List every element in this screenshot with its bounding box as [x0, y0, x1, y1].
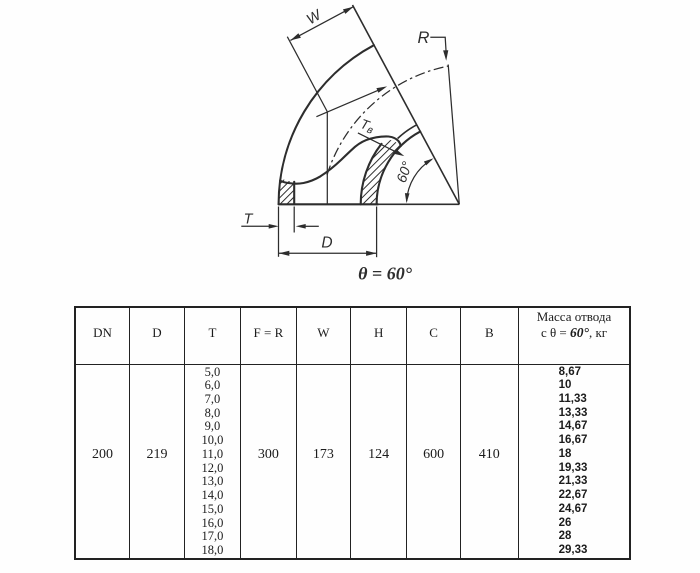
svg-text:θ = 60°: θ = 60°	[358, 264, 413, 284]
svg-text:T: T	[244, 212, 254, 228]
svg-text:W: W	[304, 7, 325, 28]
svg-text:D: D	[321, 235, 332, 252]
svg-text:R: R	[418, 29, 430, 47]
